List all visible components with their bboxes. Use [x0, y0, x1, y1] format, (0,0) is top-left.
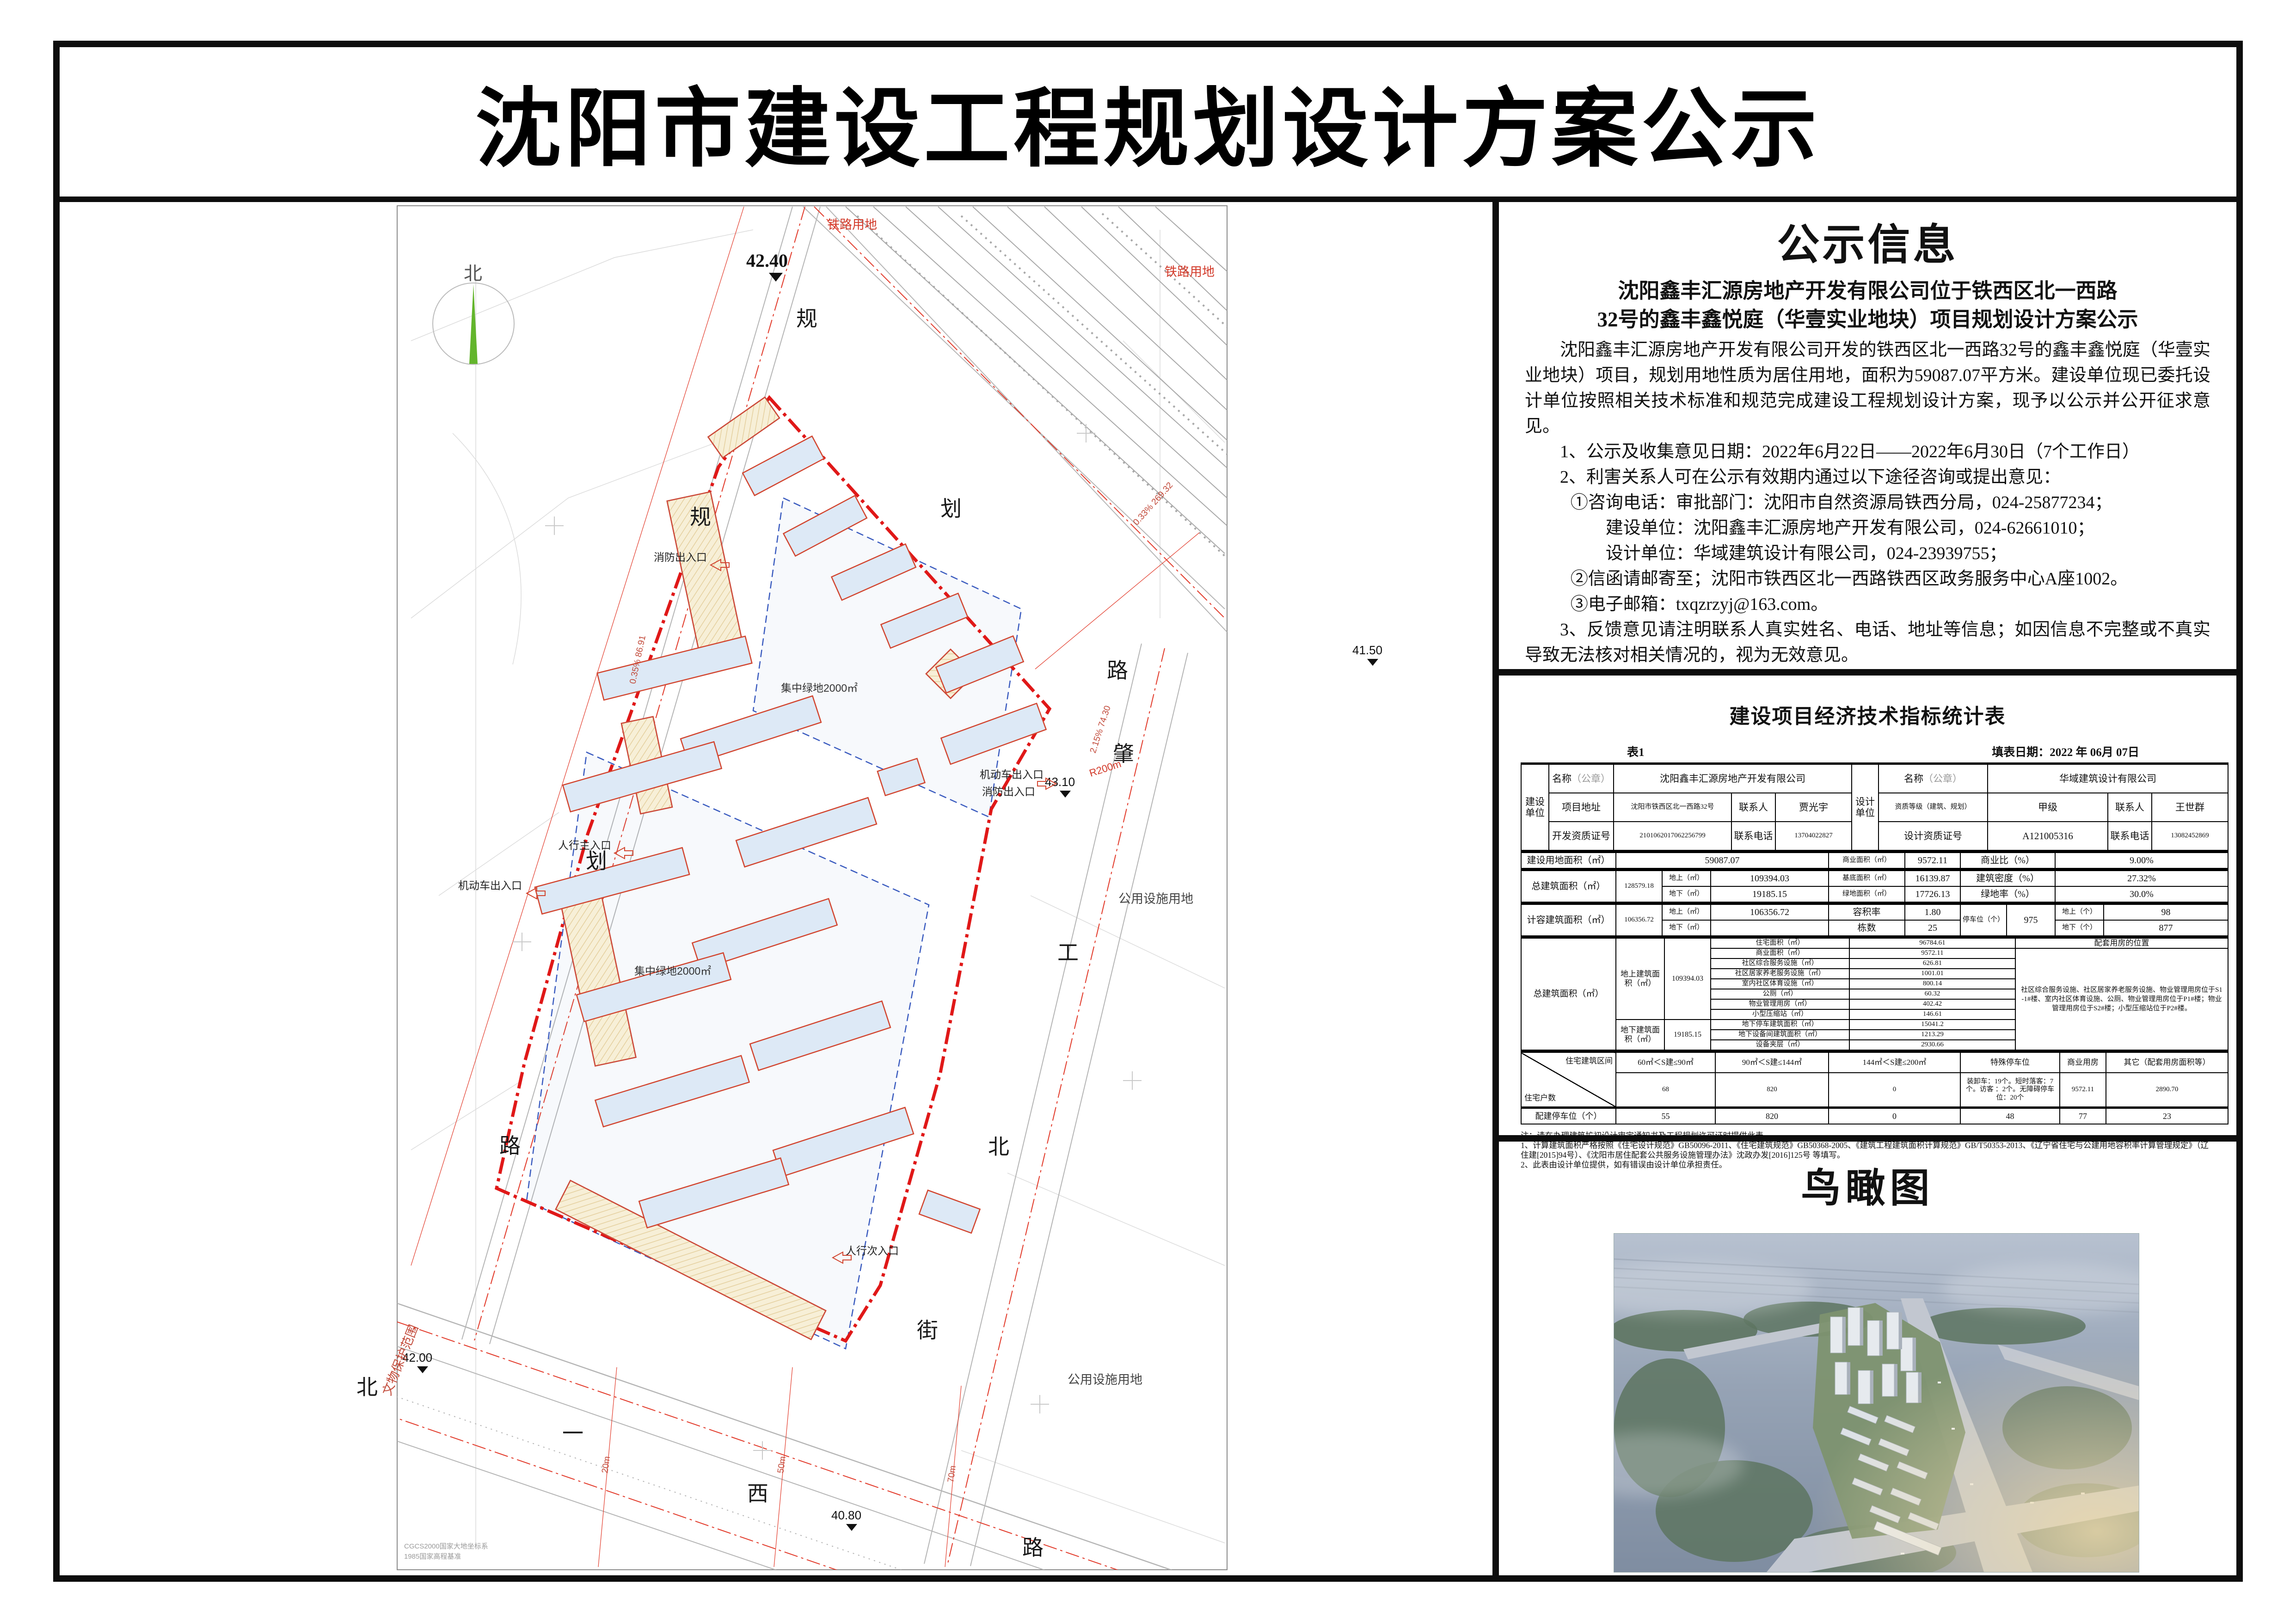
item-label: 设备夹层（㎡）: [1711, 1040, 1849, 1050]
range-header: 90㎡＜S建≤144㎡: [1715, 1052, 1829, 1073]
table-meta: 表1 填表日期：2022 年 06月 07日: [1521, 743, 2209, 759]
road-bottom-char: 西: [747, 1481, 768, 1505]
entrance-label: 机动车出入口: [980, 768, 1044, 780]
table-households: 住宅建筑区间 住宅户数 60㎡＜S建≤90㎡ 90㎡＜S建≤144㎡ 144㎡＜…: [1521, 1051, 2228, 1124]
diag-bottom-label: 住宅户数: [1524, 1094, 1556, 1103]
tel-label: 联系电话: [1731, 822, 1775, 850]
parking-cell: 0: [1829, 1108, 1960, 1124]
p-above-label: 地上（个）: [2055, 904, 2104, 921]
elevation-value: 43.10: [1045, 775, 1075, 789]
count-cell: 820: [1715, 1073, 1829, 1108]
parking-cell: 77: [2060, 1108, 2106, 1124]
seal-hint: （公章）: [1923, 773, 1962, 784]
railway-land-label: 铁路用地: [1165, 265, 1215, 279]
aerial-rendering-svg: [1614, 1234, 2139, 1572]
table-title: 建设项目经济技术指标统计表: [1499, 700, 2236, 729]
item-value: 626.81: [1849, 958, 2015, 969]
table-total: 总建筑面积（㎡） 128579.18 地上（㎡） 109394.03 基底面积（…: [1521, 869, 2228, 903]
elevation-value: 40.80: [831, 1508, 861, 1522]
count-cell: 2890.70: [2106, 1073, 2228, 1108]
p-above-value: 98: [2104, 904, 2228, 921]
ratio-label: 商业比（%）: [1960, 852, 2055, 869]
road-bottom-char: 一: [562, 1421, 583, 1445]
aerial-sunlight: [1614, 1234, 2139, 1572]
contact-label: 联系人: [1731, 793, 1775, 822]
item-value: 146.61: [1849, 1009, 2015, 1020]
public-notice-poster: 沈阳市建设工程规划设计方案公示: [0, 0, 2296, 1622]
tel-label: 联系电话: [2108, 822, 2152, 850]
road-top-char: 划: [940, 497, 962, 521]
comm-value: 9572.11: [1905, 852, 1960, 869]
contact-label: 联系人: [2108, 793, 2152, 822]
item-label: 地下停车建筑面积（㎡）: [1711, 1020, 1849, 1030]
parking-row-label: 配建停车位（个）: [1521, 1108, 1616, 1124]
road-bottom-char: 路: [1022, 1536, 1044, 1560]
support-location-text: 社区综合服务设施、社区居家养老服务设施、物业管理用房位于S1-1#楼、室内社区体…: [2015, 948, 2228, 1050]
notice-item: ③电子邮箱：txqzrzyj@163.com。: [1525, 592, 2210, 617]
count-cell: 68: [1616, 1073, 1715, 1108]
notice-item: 3、反馈意见请注明联系人真实姓名、电话、地址等信息；如因信息不完整或不真实导致无…: [1525, 617, 2210, 668]
notice-title: 公示信息: [1499, 210, 2236, 272]
p-below-value: 877: [2104, 920, 2228, 936]
cap-below-value: [1711, 920, 1829, 936]
road-left-char: 规: [690, 505, 711, 529]
crs-line: 1985国家高程基准: [404, 1553, 461, 1561]
north-label: 北: [464, 263, 482, 284]
parking-total: 975: [2007, 904, 2055, 936]
item-label: 商业面积（㎡）: [1711, 948, 1849, 958]
builder-contact: 贾光宇: [1775, 793, 1852, 822]
page-title: 沈阳市建设工程规划设计方案公示: [60, 52, 2236, 190]
density-label: 建筑密度（%）: [1960, 870, 2055, 887]
above-area-label: 地上建筑面积（㎡）: [1616, 938, 1664, 1020]
diag-top-label: 住宅建筑区间: [1565, 1057, 1613, 1066]
count-label: 栋数: [1829, 920, 1905, 936]
far-value: 1.80: [1905, 904, 1960, 921]
table-far: 计容建筑面积（㎡） 106356.72 地上（㎡） 106356.72 容积率 …: [1521, 903, 2228, 936]
aerial-rendering: [1614, 1233, 2139, 1573]
notice-item: 1、公示及收集意见日期：2022年6月22日——2022年6月30日（7个工作日…: [1525, 439, 2210, 465]
item-value: 1213.29: [1849, 1030, 2015, 1040]
below-area-value: 19185.15: [1664, 1020, 1711, 1050]
entrance-label: 消防出入口: [982, 786, 1035, 798]
notice-paragraph: 沈阳鑫丰汇源房地产开发有限公司开发的铁西区北一西路32号的鑫丰鑫悦庭（华壹实业地…: [1525, 338, 2210, 439]
site-plan-panel: 规 划 路 肇 工 北 街 规 划 路 北 一 西 路 42.40 41.50: [60, 202, 1492, 1575]
item-label: 地下设备间建筑面积（㎡）: [1711, 1030, 1849, 1040]
parking-cell: 820: [1715, 1108, 1829, 1124]
name-label-text: 名称: [1904, 773, 1923, 784]
railway-land-label: 铁路用地: [827, 218, 877, 232]
cap-above-label: 地上（㎡）: [1662, 904, 1711, 921]
entrance-label: 机动车出入口: [458, 879, 522, 891]
notice-subtitle-line1: 沈阳鑫丰汇源房地产开发有限公司位于铁西区北一西路: [1499, 276, 2236, 305]
dcert-value: A121005316: [1988, 822, 2108, 850]
entrance-label: 人行次入口: [846, 1245, 899, 1257]
notice-item: ②信函请邮寄至；沈阳市铁西区北一西路铁西区政务服务中心A座1002。: [1525, 566, 2210, 592]
green-rate-label: 绿地率（%）: [1960, 886, 2055, 902]
fill-date-value: 2022 年 06月 07日: [2050, 746, 2139, 759]
cap-above-value: 106356.72: [1711, 904, 1829, 921]
name-label: 名称（公章）: [1879, 764, 1988, 793]
seal-hint: （公章）: [1572, 773, 1610, 784]
road-left-char: 划: [586, 849, 607, 873]
special-parking-cell: 装卸车：19个。短时落客：7个。访客 ：2个。无障碍停车位：20个: [1960, 1073, 2060, 1108]
item-value: 15041.2: [1849, 1020, 2015, 1030]
addr-label: 项目地址: [1549, 793, 1614, 822]
section-divider: [1499, 1135, 2236, 1142]
notice-item: 建设单位：沈阳鑫丰汇源房地产开发有限公司，024-62661010；: [1525, 516, 2210, 541]
elevation-value: 41.50: [1352, 643, 1382, 657]
cap-below-label: 地下（㎡）: [1662, 920, 1711, 936]
cert-value: 2101062017062256799: [1614, 822, 1731, 850]
range-header: 144㎡＜S建≤200㎡: [1829, 1052, 1960, 1073]
fill-date-label: 填表日期：: [1992, 746, 2050, 759]
base-label: 基底面积（㎡）: [1829, 870, 1905, 887]
road-right-char: 街: [917, 1318, 938, 1342]
notice-body: 沈阳鑫丰汇源房地产开发有限公司开发的铁西区北一西路32号的鑫丰鑫悦庭（华壹实业地…: [1499, 334, 2236, 669]
name-label-text: 名称: [1552, 773, 1572, 784]
land-label: 建设用地面积（㎡）: [1521, 852, 1616, 869]
table-breakdown: 总建筑面积（㎡） 地上建筑面积（㎡） 109394.03 住宅面积（㎡） 967…: [1521, 936, 2228, 1051]
below-area-label: 地下建筑面积（㎡）: [1616, 1020, 1664, 1050]
ratio-value: 9.00%: [2055, 852, 2228, 869]
green-rate-value: 30.0%: [2055, 886, 2228, 902]
crs-line: CGCS2000国家大地坐标系: [404, 1542, 488, 1550]
base-value: 16139.87: [1905, 870, 1960, 887]
below-value: 19185.15: [1711, 886, 1829, 902]
road-right-char: 北: [988, 1135, 1009, 1159]
notice-item: 2、利害关系人可在公示有效期内通过以下途径咨询或提出意见：: [1525, 465, 2210, 490]
below-label: 地下（㎡）: [1662, 886, 1711, 902]
land-value: 59087.07: [1616, 852, 1829, 869]
builder-name: 沈阳鑫丰汇源房地产开发有限公司: [1614, 764, 1852, 793]
far-label: 容积率: [1829, 904, 1905, 921]
item-label: 社区综合服务设施（㎡）: [1711, 958, 1849, 969]
item-value: 60.32: [1849, 989, 2015, 999]
total-label: 总建筑面积（㎡）: [1521, 870, 1616, 903]
utility-land-label: 公用设施用地: [1118, 892, 1193, 906]
road-bottom-char: 北: [356, 1375, 378, 1399]
builder-label: 建设单位: [1521, 764, 1549, 851]
cap-value: 106356.72: [1616, 904, 1662, 936]
green-value: 17726.13: [1905, 886, 1960, 902]
grade-value: 甲级: [1988, 793, 2108, 822]
notice-subtitle-line2: 32号的鑫丰鑫悦庭（华壹实业地块）项目规划设计方案公示: [1499, 305, 2236, 334]
entrance-label: 消防出入口: [654, 551, 707, 563]
item-value: 9572.11: [1849, 948, 2015, 958]
green-space-label: 集中绿地2000㎡: [781, 682, 858, 694]
name-label: 名称（公章）: [1549, 764, 1614, 793]
designer-contact: 王世群: [2152, 793, 2228, 822]
count-cell: 0: [1829, 1073, 1960, 1108]
sheet-number: 表1: [1627, 743, 1645, 760]
special-parking-header: 特殊停车位: [1960, 1052, 2060, 1073]
item-value: 800.14: [1849, 979, 2015, 989]
parking-cell: 55: [1616, 1108, 1715, 1124]
title-divider: [60, 197, 2236, 202]
item-value: 402.42: [1849, 999, 2015, 1009]
designer-label: 设计单位: [1852, 764, 1879, 851]
aerial-section: 鸟瞰图: [1499, 1142, 2236, 1575]
count-value: 25: [1905, 920, 1960, 936]
road-right-char: 工: [1057, 940, 1079, 965]
count-cell: 9572.11: [2060, 1073, 2106, 1108]
panel-divider: [1492, 202, 1499, 1575]
other-header: 其它（配套用房面积等）: [2106, 1052, 2228, 1073]
above-label: 地上（㎡）: [1662, 870, 1711, 887]
road-top-char: 路: [1107, 658, 1128, 682]
item-label: 物业管理用房（㎡）: [1711, 999, 1849, 1009]
notice-section: 公示信息 沈阳鑫丰汇源房地产开发有限公司位于铁西区北一西路 32号的鑫丰鑫悦庭（…: [1499, 202, 2236, 669]
site-plan-drawing: 规 划 路 肇 工 北 街 规 划 路 北 一 西 路 42.40 41.50: [60, 202, 1492, 1575]
addr-value: 沈阳市铁西区北一西路32号: [1614, 793, 1731, 822]
notice-item: 设计单位：华域建筑设计有限公司，024-23939755；: [1525, 541, 2210, 566]
notice-subtitle: 沈阳鑫丰汇源房地产开发有限公司位于铁西区北一西路 32号的鑫丰鑫悦庭（华壹实业地…: [1499, 276, 2236, 334]
item-label: 住宅面积（㎡）: [1711, 938, 1849, 949]
fill-date: 填表日期：2022 年 06月 07日: [1992, 743, 2139, 760]
p-below-label: 地下（个）: [2055, 920, 2104, 936]
item-label: 公厕（㎡）: [1711, 989, 1849, 999]
item-label: 社区居家养老服务设施（㎡）: [1711, 969, 1849, 979]
density-value: 27.32%: [2055, 870, 2228, 887]
diagonal-header: 住宅建筑区间 住宅户数: [1521, 1052, 1616, 1108]
item-value: 1001.01: [1849, 969, 2015, 979]
grade-label: 资质等级（建筑、规划）: [1879, 793, 1988, 822]
range-header: 60㎡＜S建≤90㎡: [1616, 1052, 1715, 1073]
total-value: 128579.18: [1616, 870, 1662, 903]
item-value: 2930.66: [1849, 1040, 2015, 1050]
item-value: 96784.61: [1849, 938, 2015, 949]
table-land: 建设用地面积（㎡） 59087.07 商业面积（㎡） 9572.11 商业比（%…: [1521, 851, 2228, 869]
elevation-value: 42.40: [746, 250, 788, 271]
above-value: 109394.03: [1711, 870, 1829, 887]
parking-label: 停车位（个）: [1960, 904, 2007, 936]
parking-cell: 23: [2106, 1108, 2228, 1124]
comm-room-header: 商业用房: [2060, 1052, 2106, 1073]
entrance-label: 人行主入口: [558, 839, 611, 851]
road-left-char: 路: [499, 1134, 521, 1158]
item-label: 室内社区体育设施（㎡）: [1711, 979, 1849, 989]
designer-tel: 13082452869: [2152, 822, 2228, 850]
support-label: 配套用房的位置: [2015, 938, 2228, 949]
table-units: 建设单位 名称（公章） 沈阳鑫丰汇源房地产开发有限公司 设计单位 名称（公章） …: [1521, 762, 2228, 851]
aerial-title: 鸟瞰图: [1499, 1155, 2236, 1213]
comm-label: 商业面积（㎡）: [1829, 852, 1905, 869]
designer-name: 华域建筑设计有限公司: [1988, 764, 2228, 793]
cert-label: 开发资质证号: [1549, 822, 1614, 850]
notice-item: ①咨询电话：审批部门：沈阳市自然资源局铁西分局，024-25877234；: [1525, 490, 2210, 516]
gross-label: 总建筑面积（㎡）: [1521, 938, 1616, 1051]
builder-tel: 13704022827: [1775, 822, 1852, 850]
green-label: 绿地面积（㎡）: [1829, 886, 1905, 902]
road-top-char: 规: [796, 307, 817, 331]
cap-label: 计容建筑面积（㎡）: [1521, 904, 1616, 936]
elevation-marker-icon: [1367, 659, 1378, 666]
green-space-label: 集中绿地2000㎡: [634, 965, 711, 977]
utility-land-label: 公用设施用地: [1068, 1373, 1142, 1387]
parking-cell: 48: [1960, 1108, 2060, 1124]
dcert-label: 设计资质证号: [1879, 822, 1988, 850]
section-divider: [1499, 669, 2236, 676]
above-area-value: 109394.03: [1664, 938, 1711, 1020]
item-label: 小型压缩站（㎡）: [1711, 1009, 1849, 1020]
right-panel: 公示信息 沈阳鑫丰汇源房地产开发有限公司位于铁西区北一西路 32号的鑫丰鑫悦庭（…: [1499, 202, 2236, 1575]
